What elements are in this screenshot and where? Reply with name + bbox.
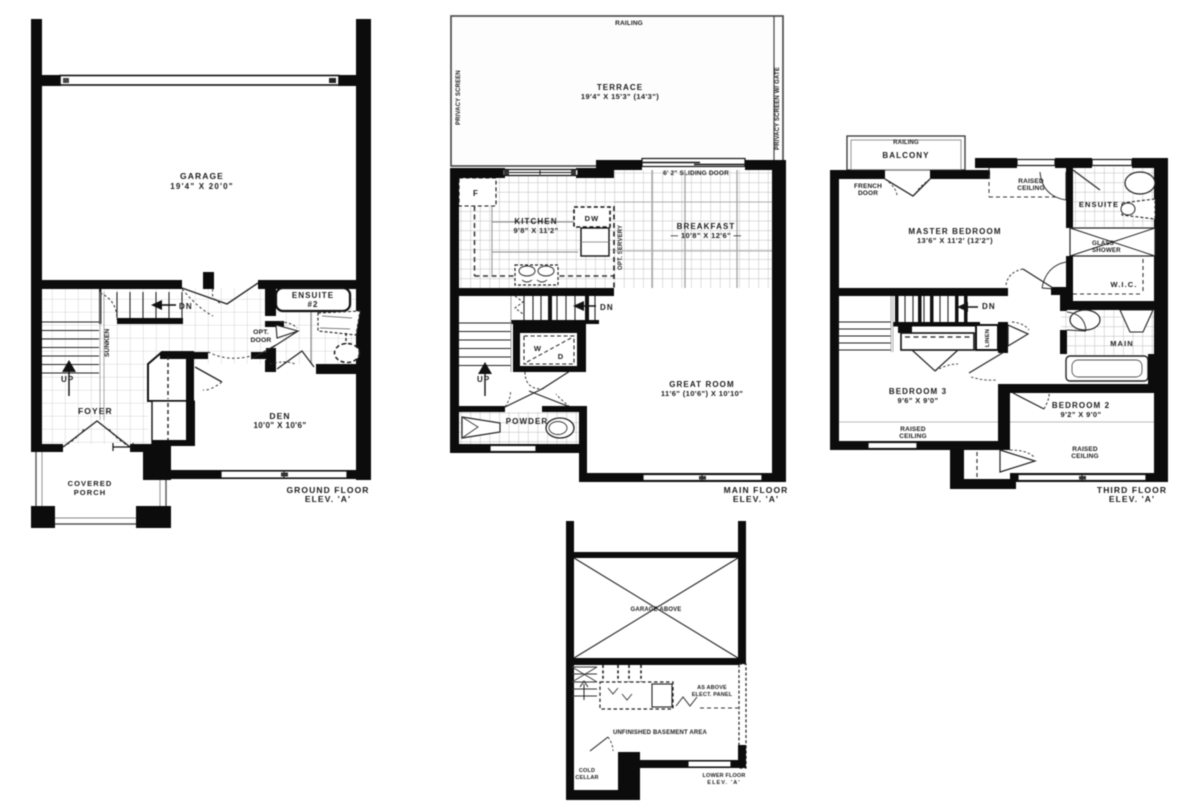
svg-text:MAIN: MAIN — [1110, 339, 1134, 348]
svg-text:D: D — [558, 352, 565, 361]
svg-text:CELLAR: CELLAR — [575, 775, 598, 781]
svg-text:SHOWER: SHOWER — [1092, 247, 1121, 254]
svg-text:DOOR: DOOR — [251, 337, 272, 344]
svg-text:#2: #2 — [307, 300, 318, 309]
svg-text:OPT.: OPT. — [253, 329, 269, 336]
svg-text:SUNKEN: SUNKEN — [104, 328, 111, 357]
svg-text:RAISED: RAISED — [900, 426, 926, 433]
svg-text:DN: DN — [982, 302, 996, 311]
svg-text:19'4" X 20'0": 19'4" X 20'0" — [170, 182, 233, 191]
svg-text:9'6" X 9'0": 9'6" X 9'0" — [898, 396, 939, 405]
svg-text:GLASS: GLASS — [1092, 240, 1114, 247]
svg-text:FRENCH: FRENCH — [854, 183, 882, 190]
svg-text:ELEV. 'A': ELEV. 'A' — [733, 494, 779, 504]
svg-text:19'4" X 15'3" (14'3"): 19'4" X 15'3" (14'3") — [581, 92, 659, 101]
svg-text:9'2" X 9'0": 9'2" X 9'0" — [1061, 410, 1102, 419]
svg-text:F: F — [473, 189, 479, 198]
svg-text:ENSUITE: ENSUITE — [1079, 200, 1119, 209]
svg-text:13'6" X 11'2' (12'2"): 13'6" X 11'2' (12'2") — [917, 236, 993, 245]
svg-text:UP: UP — [477, 375, 490, 384]
svg-text:DN: DN — [179, 302, 193, 311]
svg-text:UP: UP — [61, 375, 74, 384]
svg-text:BEDROOM 2: BEDROOM 2 — [1052, 401, 1110, 410]
svg-text:PRIVACY SCREEN: PRIVACY SCREEN — [456, 70, 462, 125]
svg-text:ELECT. PANEL: ELECT. PANEL — [692, 692, 733, 698]
svg-text:11'6" (10'6") X 10'10": 11'6" (10'6") X 10'10" — [661, 389, 743, 398]
svg-text:6' 2" SLIDING DOOR: 6' 2" SLIDING DOOR — [663, 170, 729, 177]
svg-text:CEILING: CEILING — [899, 433, 926, 440]
svg-text:W.I.C.: W.I.C. — [1110, 280, 1137, 289]
svg-text:RAILING: RAILING — [615, 20, 643, 27]
svg-text:CEILING: CEILING — [1071, 453, 1098, 460]
svg-text:9'8" X 11'2": 9'8" X 11'2" — [513, 226, 558, 235]
svg-text:ELEV. 'A': ELEV. 'A' — [1109, 494, 1155, 504]
svg-text:COLD: COLD — [579, 768, 595, 774]
svg-text:TERRACE: TERRACE — [597, 83, 643, 92]
svg-text:RAISED: RAISED — [1018, 178, 1044, 185]
svg-text:BALCONY: BALCONY — [882, 151, 929, 160]
svg-text:MASTER BEDROOM: MASTER BEDROOM — [908, 227, 1001, 236]
svg-text:DEN: DEN — [269, 411, 290, 421]
svg-text:UNFINISHED BASEMENT AREA: UNFINISHED BASEMENT AREA — [613, 730, 708, 736]
svg-text:COVERED: COVERED — [68, 479, 113, 488]
svg-text:BEDROOM 3: BEDROOM 3 — [889, 387, 947, 396]
svg-text:DW: DW — [585, 214, 600, 223]
svg-text:LOWER FLOOR: LOWER FLOOR — [703, 773, 746, 779]
svg-text:PORCH: PORCH — [74, 488, 107, 497]
svg-text:GARAGE: GARAGE — [180, 171, 224, 181]
svg-text:POWDER: POWDER — [506, 417, 549, 426]
svg-text:RAISED: RAISED — [1072, 446, 1098, 453]
svg-text:— 10'8" X 12'6" —: — 10'8" X 12'6" — — [671, 231, 742, 240]
svg-text:KITCHEN: KITCHEN — [514, 217, 557, 226]
svg-text:PRIVACY SCREEN W/ GATE: PRIVACY SCREEN W/ GATE — [775, 67, 781, 150]
svg-text:W: W — [534, 344, 542, 353]
svg-text:DN: DN — [600, 303, 614, 312]
svg-text:10'0" X 10'6": 10'0" X 10'6" — [253, 421, 306, 430]
svg-text:GREAT ROOM: GREAT ROOM — [669, 380, 735, 389]
svg-text:LINEN: LINEN — [985, 329, 991, 347]
svg-text:AS ABOVE: AS ABOVE — [697, 685, 727, 691]
svg-text:BREAKFAST: BREAKFAST — [677, 222, 736, 231]
svg-text:GARAGE ABOVE: GARAGE ABOVE — [631, 607, 682, 613]
svg-text:ENSUITE: ENSUITE — [292, 291, 334, 300]
svg-text:FOYER: FOYER — [78, 406, 113, 416]
svg-text:ELEV. 'A': ELEV. 'A' — [305, 494, 351, 504]
svg-text:RAILING: RAILING — [893, 140, 919, 146]
svg-text:ELEV. 'A': ELEV. 'A' — [707, 780, 740, 786]
svg-text:DOOR: DOOR — [858, 190, 878, 197]
svg-text:OPT. SERVERY: OPT. SERVERY — [618, 225, 624, 270]
svg-text:CEILING: CEILING — [1017, 185, 1044, 192]
